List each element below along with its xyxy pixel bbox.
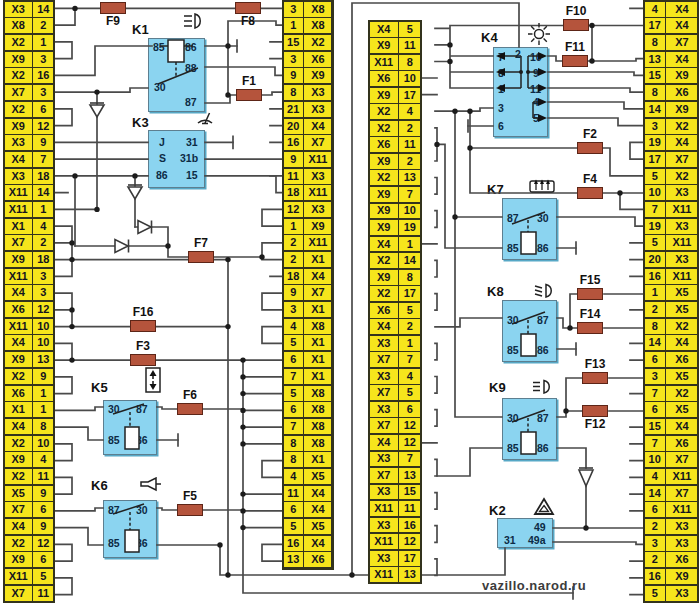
- connector-cell: X9: [5, 252, 32, 267]
- connector-cell: 12: [399, 534, 420, 549]
- connector-cell: X7: [370, 418, 398, 433]
- connector-cell: X6: [666, 352, 697, 367]
- relay-pin: S: [159, 153, 166, 164]
- connector-cell: 17: [399, 286, 420, 301]
- connector-cell: X9: [370, 187, 398, 202]
- relay-pin: 87: [136, 404, 148, 415]
- connector-cell: X6: [370, 137, 398, 152]
- connector-cell: X4: [666, 18, 697, 33]
- relay-label-k6: K6: [91, 479, 108, 492]
- relay-label-k1: K1: [132, 23, 149, 36]
- connector-cell: 9: [33, 519, 53, 534]
- fuse-f5: F5: [177, 504, 203, 516]
- connector-cell: X3: [304, 102, 331, 117]
- connector-cell: X4: [5, 285, 32, 300]
- connector-cell: 10: [33, 436, 53, 451]
- connector-cell: 3: [284, 2, 303, 17]
- connector-cell: 1: [284, 219, 303, 234]
- connector-cell: 7: [645, 386, 665, 401]
- connector-cell: 3: [33, 52, 53, 67]
- connector-cell: X7: [666, 486, 697, 501]
- connector-cell: 12: [399, 418, 420, 433]
- connector-cell: X2: [5, 536, 32, 551]
- connector-cell: X1: [304, 369, 331, 384]
- connector-cell: 15: [284, 35, 303, 50]
- connector-cell: X11: [5, 319, 32, 334]
- connector-cell: 13: [399, 567, 420, 582]
- connector-cell: X3: [5, 169, 32, 184]
- connector-cell: X4: [304, 502, 331, 517]
- connector-cell: 6: [645, 402, 665, 417]
- connector-cell: 14: [399, 253, 420, 268]
- connector-cell: X7: [5, 235, 32, 250]
- high-beam-icon: [181, 12, 205, 30]
- relay-pin: 31: [504, 535, 516, 546]
- connector-cell: 1: [33, 402, 53, 417]
- connector-cell: 11: [399, 38, 420, 53]
- fuse-f1: F1: [236, 89, 262, 101]
- connector-cell: 4: [399, 104, 420, 119]
- connector-cell: 17: [645, 18, 665, 33]
- connector-cell: 15: [645, 68, 665, 83]
- connector-cell: X11: [370, 567, 398, 582]
- relay-pin: 4: [533, 97, 539, 108]
- connector-cell: X8: [304, 319, 331, 334]
- connector-cell: 16: [284, 135, 303, 150]
- connector-cell: X11: [666, 269, 697, 284]
- connector-cell: X8: [304, 386, 331, 401]
- connector-cell: 8: [645, 319, 665, 334]
- connector-cell: 3: [33, 285, 53, 300]
- connector-cell: X11: [304, 185, 331, 200]
- connector-cell: 16: [399, 518, 420, 533]
- connector-cell: 2: [33, 235, 53, 250]
- connector-cell: X2: [370, 286, 398, 301]
- connector-cell: X2: [666, 386, 697, 401]
- connector-cell: X6: [5, 386, 32, 401]
- connector-cell: X9: [666, 102, 697, 117]
- connector-cell: 12: [399, 435, 420, 450]
- connector-cell: 14: [33, 2, 53, 17]
- relay-pin: 86: [537, 345, 549, 356]
- connector-cell: 2: [284, 252, 303, 267]
- connector-cell: X2: [370, 121, 398, 136]
- relay-pin: 7: [498, 52, 504, 63]
- wiper-icon: [195, 109, 215, 126]
- relay-pin: 31b: [180, 153, 198, 164]
- connector-cell: 7: [645, 202, 665, 217]
- connector-cell: X3: [304, 202, 331, 217]
- connector-cell: X8: [5, 18, 32, 33]
- connector-cell: 4: [33, 219, 53, 234]
- connector-cell: X3: [666, 536, 697, 551]
- relay-pin: 30: [507, 315, 519, 326]
- connector-cell: X7: [5, 502, 32, 517]
- relay-pin: 30: [154, 82, 166, 93]
- connector-cell: 3: [645, 119, 665, 134]
- connector-cell: X7: [5, 85, 32, 100]
- connector-cell: X7: [304, 135, 331, 150]
- connector-cell: 9: [284, 152, 303, 167]
- relay-pin: 8: [498, 68, 504, 79]
- connector-cell: 19: [645, 135, 665, 150]
- fuse-f8: F8: [235, 2, 261, 14]
- connector-cell: X4: [666, 335, 697, 350]
- connector-cell: X2: [5, 436, 32, 451]
- connector-cell: X6: [304, 52, 331, 67]
- connector-cell: 7: [284, 369, 303, 384]
- connector-cell: X2: [666, 119, 697, 134]
- connector-cell: X3: [5, 2, 32, 17]
- relay-pin: 49: [534, 522, 546, 533]
- connector-cell: X5: [666, 369, 697, 384]
- connector-cell: 15: [645, 419, 665, 434]
- connector-cell: X9: [5, 552, 32, 567]
- connector-cell: X11: [370, 534, 398, 549]
- turn-signal-flasher-icon: [527, 21, 551, 46]
- connector-cell: 14: [645, 335, 665, 350]
- hazard-warning-icon: [533, 497, 555, 517]
- connector-cell: X3: [370, 452, 398, 467]
- connector-cell: 2: [33, 18, 53, 33]
- connector-cell: X2: [370, 170, 398, 185]
- connector-cell: 16: [33, 68, 53, 83]
- connector-cell: 13: [399, 170, 420, 185]
- connector-cell: X4: [370, 237, 398, 252]
- relay-label-k3: K3: [132, 116, 149, 129]
- connector-cell: 18: [284, 269, 303, 284]
- connector-cell: 7: [33, 152, 53, 167]
- connector-cell: X3: [304, 169, 331, 184]
- relay-pin: 30: [537, 213, 549, 224]
- connector-cell: X11: [304, 152, 331, 167]
- connector-cell: X3: [370, 369, 398, 384]
- connector-cell: 5: [645, 235, 665, 250]
- connector-cell: X6: [666, 436, 697, 451]
- connector-cell: 2: [399, 121, 420, 136]
- fuse-f2: F2: [577, 142, 603, 154]
- connector-cell: 5: [645, 586, 665, 601]
- connector-cell: X5: [304, 519, 331, 534]
- connector-cell: 6: [284, 402, 303, 417]
- connector-cell: 11: [33, 586, 53, 601]
- connector-cell: X2: [370, 253, 398, 268]
- connector-cell: X3: [5, 135, 32, 150]
- connector-cell: 16: [645, 269, 665, 284]
- relay-pin: 85: [108, 538, 120, 549]
- connector-cell: X11: [5, 185, 32, 200]
- horn-icon: [139, 477, 163, 492]
- connector-cell: 8: [645, 35, 665, 50]
- connector-cell: X2: [5, 68, 32, 83]
- connector-cell: 5: [399, 303, 420, 318]
- relay-pin: 6: [498, 121, 504, 132]
- connector-cell: X7: [370, 352, 398, 367]
- fuse-f3: F3: [130, 354, 156, 366]
- connector-cell: 5: [284, 386, 303, 401]
- relay-pin: 87: [108, 505, 120, 516]
- relay-pin: 30: [108, 404, 120, 415]
- connector-cell: X3: [666, 586, 697, 601]
- connector-cell: 5: [33, 569, 53, 584]
- connector-cell: 4: [399, 369, 420, 384]
- connector-cell: 3: [645, 369, 665, 384]
- relay-label-k4: K4: [481, 31, 498, 44]
- connector-cell: 3: [645, 536, 665, 551]
- connector-cell: X4: [370, 435, 398, 450]
- relay-pin: 49a: [528, 535, 546, 546]
- fuse-f15: F15: [577, 288, 603, 300]
- fuse-f13: F13: [582, 372, 608, 384]
- connector-cell: 6: [33, 502, 53, 517]
- connector-cell: 4: [33, 452, 53, 467]
- connector-cell: X7: [666, 452, 697, 467]
- connector-cell: X1: [304, 302, 331, 317]
- connector-cell: X2: [5, 469, 32, 484]
- relay-k4: 2 7 8 1 3 6 10 9 11 4 5: [493, 47, 548, 137]
- connector-cell: X6: [370, 303, 398, 318]
- connector-cell: X9: [370, 204, 398, 219]
- connector-cell: X3: [370, 402, 398, 417]
- connector-cell: X11: [5, 202, 32, 217]
- connector-cell: X7: [370, 385, 398, 400]
- connector-cell: X1: [5, 219, 32, 234]
- connector-cell: 9: [33, 135, 53, 150]
- watermark: vazillo.narod.ru: [482, 578, 586, 593]
- connector-cell: X2: [370, 104, 398, 119]
- connector-cell: X9: [370, 38, 398, 53]
- connector-cell: 8: [33, 419, 53, 434]
- connector-cell: X11: [5, 569, 32, 584]
- connector-cell: 7: [399, 452, 420, 467]
- relay-label-k2: K2: [489, 504, 506, 517]
- connector-cell: 10: [399, 204, 420, 219]
- connector-cell: X9: [5, 119, 32, 134]
- connector-cell: 2: [399, 154, 420, 169]
- relay-pin: 87: [507, 213, 519, 224]
- connector-cell: 7: [284, 419, 303, 434]
- connector-cell: 4: [645, 2, 665, 17]
- connector-cell: 9: [284, 285, 303, 300]
- connector-cell: X4: [666, 2, 697, 17]
- connector-cell: 2: [284, 235, 303, 250]
- connector-cell: X9: [370, 154, 398, 169]
- connector-cell: X5: [5, 486, 32, 501]
- connector-cell: 17: [399, 551, 420, 566]
- connector-cell: X9: [666, 569, 697, 584]
- relay-pin: 2: [515, 49, 521, 60]
- relay-pin: 3: [498, 103, 504, 114]
- connector-cell: 8: [399, 270, 420, 285]
- relay-pin: 86: [156, 170, 168, 181]
- relay-pin: 86: [136, 435, 148, 446]
- connector-cell: X9: [5, 452, 32, 467]
- connector-cell: X9: [5, 352, 32, 367]
- connector-cell: 18: [33, 252, 53, 267]
- connector-cell: X9: [370, 220, 398, 235]
- connector-cell: 18: [33, 169, 53, 184]
- connector-cell: 9: [33, 486, 53, 501]
- connector-cell: 8: [399, 55, 420, 70]
- connector-cell: 16: [645, 569, 665, 584]
- relay-pin: 87: [185, 97, 197, 108]
- connector-cell: X4: [304, 119, 331, 134]
- fuse-f9: F9: [100, 2, 126, 14]
- connector-cell: 2: [399, 319, 420, 334]
- relay-pin: 85: [507, 345, 519, 356]
- connector-cell: 11: [399, 137, 420, 152]
- connector-cell: 5: [284, 519, 303, 534]
- connector-cell: X6: [666, 552, 697, 567]
- connector-cell: X6: [666, 85, 697, 100]
- connector-cell: X2: [304, 35, 331, 50]
- connector-cell: X7: [666, 35, 697, 50]
- relay-pin: 5: [533, 113, 539, 124]
- connector-cell: 1: [33, 386, 53, 401]
- connector-cell: 20: [645, 252, 665, 267]
- connector-cell: X4: [5, 335, 32, 350]
- connector-cell: X4: [666, 419, 697, 434]
- connector-cell: 1: [399, 336, 420, 351]
- connector-cell: X11: [666, 502, 697, 517]
- connector-cell: 6: [645, 502, 665, 517]
- connector-cell: 12: [33, 302, 53, 317]
- connector-cell: 16: [284, 536, 303, 551]
- connector-cell: 3: [284, 52, 303, 67]
- connector-cell: 8: [284, 85, 303, 100]
- connector-cell: 13: [33, 352, 53, 367]
- relay-k8: 30 87 85 86: [502, 300, 557, 362]
- connector-cell: X4: [5, 419, 32, 434]
- relay-pin: 85: [153, 42, 165, 53]
- relay-label-k9: K9: [489, 381, 506, 394]
- connector-cell: X11: [666, 469, 697, 484]
- connector-cell: X8: [304, 436, 331, 451]
- relay-pin: 9: [533, 68, 539, 79]
- connector-cell: X4: [5, 152, 32, 167]
- relay-pin: 10: [530, 52, 542, 63]
- connector-column-left: X314X82X21X93X216X73X26X912X39X47X318X11…: [3, 0, 55, 603]
- connector-cell: X4: [666, 135, 697, 150]
- connector-cell: 15: [399, 485, 420, 500]
- connector-cell: 9: [284, 68, 303, 83]
- heated-rear-window-icon: [529, 176, 555, 194]
- connector-cell: 1: [33, 35, 53, 50]
- connector-cell: X1: [304, 352, 331, 367]
- fuse-f10: F10: [563, 19, 589, 31]
- connector-cell: X3: [666, 219, 697, 234]
- connector-cell: 12: [33, 119, 53, 134]
- connector-cell: X4: [370, 22, 398, 37]
- connector-cell: 8: [645, 85, 665, 100]
- connector-cell: 1: [33, 202, 53, 217]
- connector-column-right: 4X417X48X713X415X98X614X93X219X417X75X21…: [643, 0, 699, 603]
- connector-cell: X7: [5, 586, 32, 601]
- connector-cell: X4: [666, 52, 697, 67]
- connector-cell: 3: [33, 269, 53, 284]
- connector-cell: X2: [666, 319, 697, 334]
- connector-cell: 14: [33, 185, 53, 200]
- connector-cell: 6: [284, 352, 303, 367]
- connector-cell: X11: [370, 55, 398, 70]
- relay-pin: 88: [185, 63, 197, 74]
- connector-cell: 17: [399, 88, 420, 103]
- connector-cell: X8: [304, 402, 331, 417]
- relay-k2: 49 31 49a: [497, 518, 553, 548]
- fuse-f14: F14: [577, 322, 603, 334]
- connector-cell: 8: [284, 452, 303, 467]
- connector-cell: X6: [304, 552, 331, 567]
- connector-cell: 1: [284, 18, 303, 33]
- connector-cell: X9: [666, 68, 697, 83]
- connector-cell: 6: [33, 102, 53, 117]
- connector-cell: X11: [304, 235, 331, 250]
- connector-cell: 2: [645, 552, 665, 567]
- connector-cell: 7: [399, 352, 420, 367]
- connector-cell: X6: [370, 71, 398, 86]
- connector-cell: X3: [370, 485, 398, 500]
- connector-cell: 6: [33, 552, 53, 567]
- connector-cell: X7: [370, 468, 398, 483]
- connector-column-mid-right: X45X911X118X610X917X24X22X611X92X213X97X…: [368, 20, 422, 584]
- relay-pin: 85: [108, 435, 120, 446]
- relay-pin: 85: [507, 443, 519, 454]
- relay-pin: 85: [507, 243, 519, 254]
- relay-pin: 30: [136, 505, 148, 516]
- relay-k7: 87 30 85 86: [502, 198, 557, 260]
- relay-pin: 86: [537, 243, 549, 254]
- relay-pin: 86: [537, 443, 549, 454]
- connector-cell: X4: [304, 269, 331, 284]
- connector-cell: X3: [666, 185, 697, 200]
- connector-cell: 10: [33, 335, 53, 350]
- connector-cell: X4: [370, 319, 398, 334]
- relay-pin: 87: [537, 413, 549, 424]
- relay-k1: 85 86 88 30 87: [148, 38, 205, 112]
- connector-cell: X3: [370, 336, 398, 351]
- relay-k6: 87 30 85 86: [103, 500, 157, 558]
- connector-cell: 4: [284, 469, 303, 484]
- headlight-high-beam-icon: [530, 378, 554, 395]
- connector-cell: 17: [645, 152, 665, 167]
- connector-cell: X7: [666, 152, 697, 167]
- relay-pin: 1: [498, 84, 504, 95]
- connector-cell: X11: [370, 501, 398, 516]
- connector-cell: 7: [645, 436, 665, 451]
- relay-k5: 30 87 85 86: [103, 400, 157, 455]
- fuse-f16: F16: [130, 320, 156, 332]
- connector-cell: X5: [666, 402, 697, 417]
- connector-cell: X9: [370, 88, 398, 103]
- relay-label-k7: K7: [487, 183, 504, 196]
- connector-cell: 10: [645, 185, 665, 200]
- connector-cell: X8: [304, 419, 331, 434]
- connector-cell: 10: [645, 452, 665, 467]
- relay-pin: 15: [186, 170, 198, 181]
- connector-cell: 2: [645, 519, 665, 534]
- connector-cell: X1: [304, 452, 331, 467]
- connector-cell: 10: [33, 319, 53, 334]
- fuse-f4: F4: [577, 187, 603, 199]
- connector-cell: X6: [5, 302, 32, 317]
- connector-cell: X9: [304, 68, 331, 83]
- wiring-diagram-canvas: 85 86 88 30 87 J S 86 31 31b 15 30 87 85…: [0, 0, 700, 603]
- relay-label-k8: K8: [487, 285, 504, 298]
- relay-pin: 31: [186, 137, 198, 148]
- connector-cell: X5: [666, 302, 697, 317]
- fuse-f6: F6: [177, 403, 203, 415]
- connector-cell: 6: [399, 402, 420, 417]
